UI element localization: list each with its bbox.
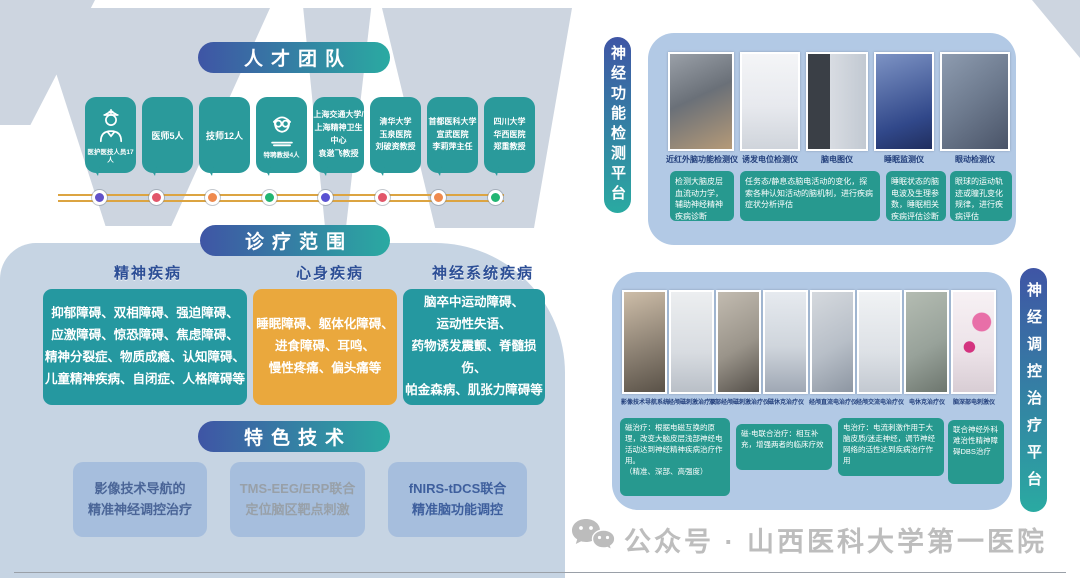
tech-item-fnirs-tdcs: fNIRS-tDCS联合 精准脑功能调控 [388, 462, 527, 537]
bubble-label: 医师5人 [151, 129, 183, 142]
page-bottom-border [14, 572, 1066, 573]
detection-caption-eye: 眼球的运动轨迹或瞳孔变化规律，进行疾病评估 [950, 171, 1012, 221]
treatment-caption-combined: 磁-电联合治疗：相互补充，增强两者的临床疗效 [736, 424, 832, 470]
bubble-label: 特聘教授4人 [263, 152, 299, 160]
mental-diseases-box: 抑郁障碍、双相障碍、强迫障碍、 应激障碍、惊恐障碍、焦虑障碍、 精神分裂症、物质… [43, 289, 247, 405]
equipment-photo-mst [763, 290, 808, 394]
timeline-bubble-capital: 首都医科大学 宣武医院 李莉萍主任 [427, 97, 478, 173]
wechat-account-label: 公众号 · 山西医科大学第一医院 [624, 520, 1047, 559]
equipment-photo-eye-tracker [940, 52, 1010, 151]
equipment-photo-eeg [806, 52, 868, 151]
treatment-platform-title: 神经调控治疗平台 [1020, 268, 1047, 512]
equipment-photo-tdcs [810, 290, 855, 394]
equipment-photo-evoked-potential [740, 52, 800, 151]
equipment-label: 脑电图仪 [804, 154, 870, 165]
tech-item-tms-eeg: TMS-EEG/ERP联合 定位脑区靶点刺激 [230, 462, 365, 537]
timeline-dot [92, 190, 107, 205]
psychosomatic-diseases-box: 睡眠障碍、躯体化障碍、 进食障碍、耳鸣、 慢性疼痛、偏头痛等 [253, 289, 397, 405]
timeline-bubble-sichuan: 四川大学 华西医院 郑重教授 [484, 97, 535, 173]
timeline-bubble-staff: 医护医技人员17人 [85, 97, 136, 173]
treatment-caption-magnetic: 磁治疗：根据电磁互换的原理，改变大脑皮层浅部神经电活动达到神经精神疾病治疗作用。… [620, 418, 730, 496]
timeline-dot [149, 190, 164, 205]
talent-section-title: 人才团队 [198, 42, 390, 73]
bubble-label: 四川大学 华西医院 郑重教授 [494, 116, 526, 154]
treatment-caption-dbs: 联合神经外科难治性精神障碍DBS治疗 [948, 420, 1004, 484]
tech-item-label: fNIRS-tDCS联合 精准脑功能调控 [409, 479, 507, 519]
doctor-icon [94, 105, 128, 147]
timeline-bubble-professors: 特聘教授4人 [256, 97, 307, 173]
tech-title-text: 特色技术 [236, 423, 352, 450]
tech-section-title: 特色技术 [198, 421, 390, 452]
timeline-dot [205, 190, 220, 205]
equipment-photo-nav-system [622, 290, 667, 394]
equipment-label: 近红外脑功能检测仪 [664, 154, 740, 165]
bubble-label: 清华大学 玉泉医院 刘破资教授 [376, 116, 416, 154]
psychosomatic-diseases-list: 睡眠障碍、躯体化障碍、 进食障碍、耳鸣、 慢性疼痛、偏头痛等 [256, 314, 394, 380]
wechat-icon [570, 517, 616, 562]
equipment-photo-tacs [857, 290, 902, 394]
equipment-photo-nirs [668, 52, 734, 151]
equipment-label: 脑深部电刺激仪 [939, 397, 1009, 406]
scope-title-text: 诊疗范围 [237, 227, 353, 254]
tech-item-label: 影像技术导航的 精准神经调控治疗 [88, 479, 192, 519]
timeline-bubble-shanghai: 上海交通大学/ 上海精神卫生中心 袁逖飞教授 [313, 97, 364, 173]
professor-icon [264, 110, 300, 150]
tech-item-navigation: 影像技术导航的 精准神经调控治疗 [73, 462, 207, 537]
neurological-diseases-list: 脑卒中运动障碍、 运动性失语、 药物诱发震颤、脊髓损伤、 帕金森病、肌张力障碍等 [403, 292, 545, 401]
decor-shape-top-right [1032, 0, 1080, 58]
timeline-dot [262, 190, 277, 205]
category-neurological: 神经系统疾病 [418, 262, 548, 283]
timeline-dot [431, 190, 446, 205]
timeline-bubble-technicians: 技师12人 [199, 97, 250, 173]
talent-title-text: 人才团队 [236, 44, 352, 71]
equipment-photo-dbs [951, 290, 996, 394]
timeline-dot [375, 190, 390, 205]
hospital-infographic: 人才团队 医护医技人员17人 医师5人 技师12人 [0, 0, 1080, 578]
timeline-dot [318, 190, 333, 205]
tech-item-label: TMS-EEG/ERP联合 定位脑区靶点刺激 [240, 479, 356, 519]
equipment-photo-sleep-monitor [874, 52, 934, 151]
equipment-label: 睡眠监测仪 [872, 154, 936, 165]
equipment-label: 诱发电位检测仪 [734, 154, 806, 165]
detection-caption-nirs: 检测大脑皮层血流动力学，辅助神经精神疾病诊断 [670, 171, 734, 221]
bubble-label: 首都医科大学 宣武医院 李莉萍主任 [429, 116, 477, 154]
timeline-dot [488, 190, 503, 205]
category-psychosomatic: 心身疾病 [270, 262, 390, 283]
detection-caption-sleep: 睡眠状态的脑电波及生理参数，睡眠相关疾病评估诊断 [886, 171, 946, 221]
bubble-label: 技师12人 [206, 129, 243, 142]
detection-platform-title: 神经功能检测平台 [604, 37, 631, 213]
bubble-label: 上海交通大学/ 上海精神卫生中心 袁逖飞教授 [313, 109, 364, 160]
equipment-photo-ect [904, 290, 949, 394]
neurological-diseases-box: 脑卒中运动障碍、 运动性失语、 药物诱发震颤、脊髓损伤、 帕金森病、肌张力障碍等 [403, 289, 545, 405]
equipment-photo-tms [669, 290, 714, 394]
timeline-bubble-physicians: 医师5人 [142, 97, 193, 173]
equipment-photo-deep-tms [716, 290, 761, 394]
treatment-caption-electric: 电治疗：电流刺激作用于大脑皮质/迷走神经，调节神经网络的活性达到疾病治疗作用 [838, 418, 944, 476]
bubble-label: 医护医技人员17人 [85, 149, 136, 166]
equipment-label: 眼动检测仪 [938, 154, 1012, 165]
scope-section-title: 诊疗范围 [200, 225, 390, 256]
detection-caption-eeg: 任务态/静息态脑电活动的变化，探索各种认知活动的脑机制，进行疾病症状分析评估 [740, 171, 880, 221]
timeline-bubble-tsinghua: 清华大学 玉泉医院 刘破资教授 [370, 97, 421, 173]
mental-diseases-list: 抑郁障碍、双相障碍、强迫障碍、 应激障碍、惊恐障碍、焦虑障碍、 精神分裂症、物质… [45, 303, 245, 391]
category-mental: 精神疾病 [88, 262, 208, 283]
